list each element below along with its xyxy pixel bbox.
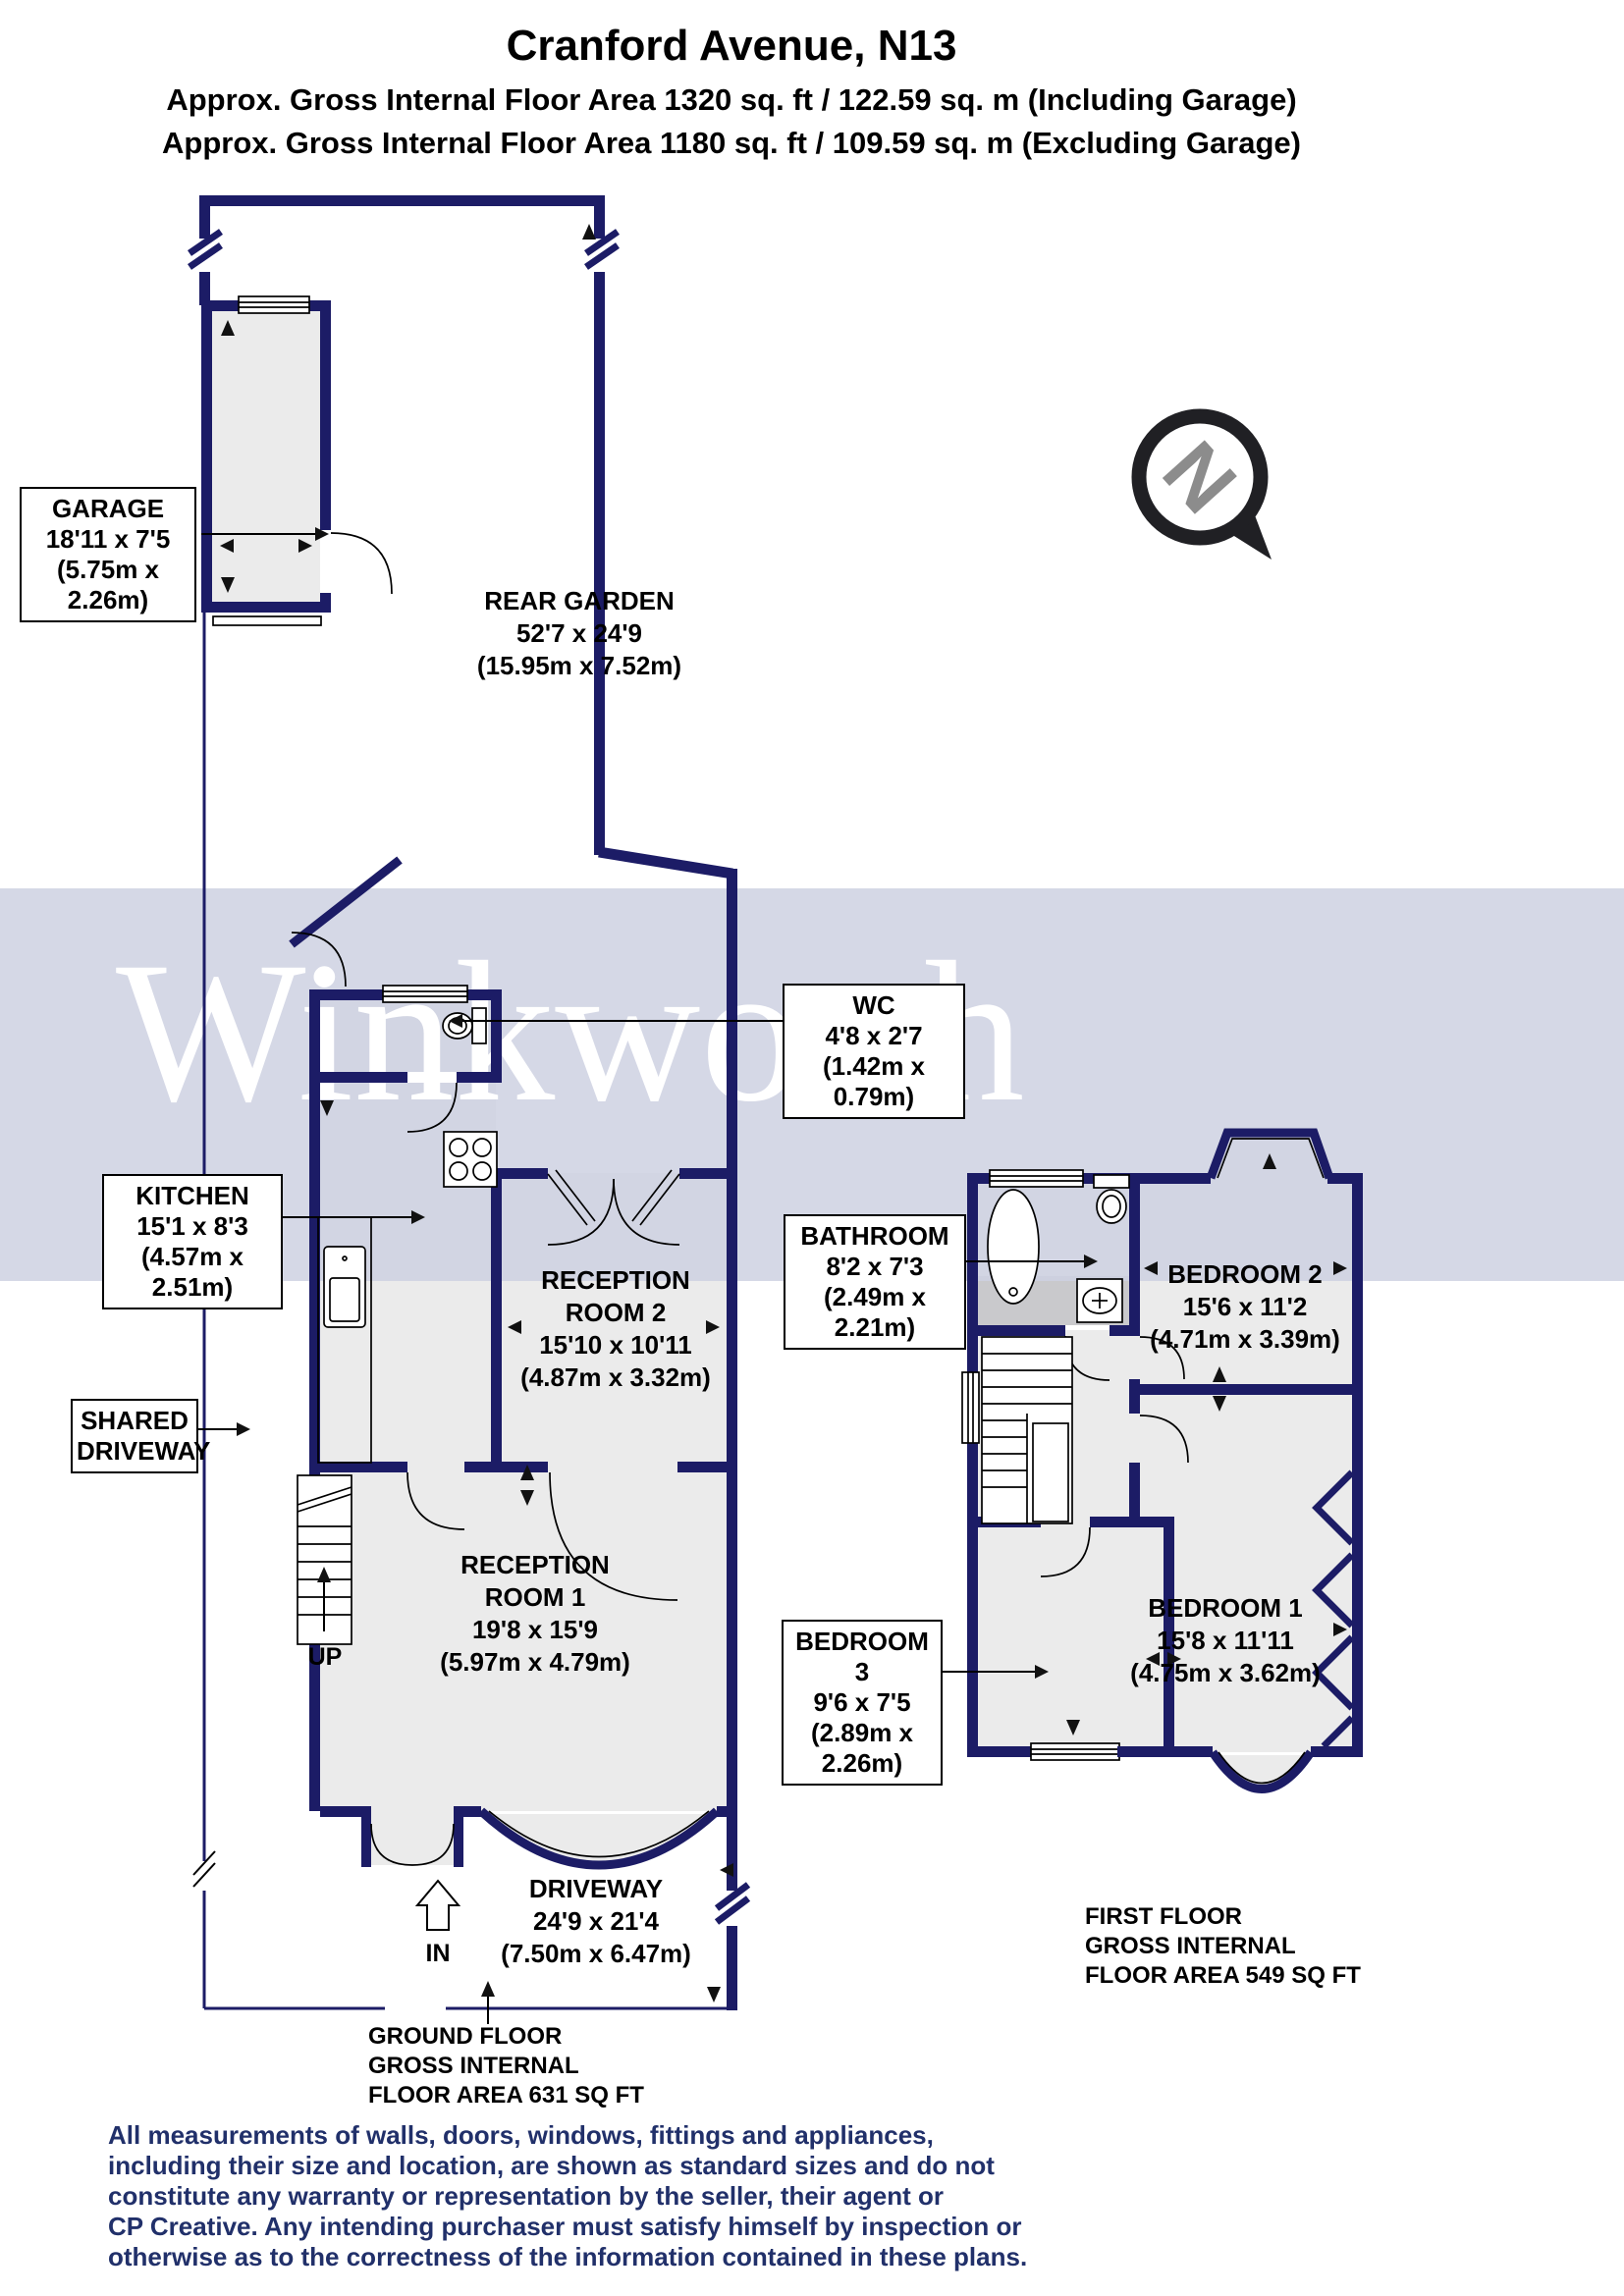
wc-right-wall [491,989,502,1083]
porch-door-arc-left [371,1824,412,1865]
wc-label-imperial: 4'8 x 2'7 [788,1021,959,1051]
ff-bottom-wall-left [967,1746,1031,1757]
boundary-break-bottom-right [717,1885,748,1926]
reception1-label: RECEPTION ROOM 1 19'8 x 15'9 (5.97m x 4.… [440,1549,630,1679]
wc-label: WC 4'8 x 2'7 (1.42m x 0.79m) [783,984,965,1119]
rear-garden-metric: (15.95m x 7.52m) [477,650,681,682]
ff-stairs [982,1337,1072,1523]
garage-label-metric: (5.75m x 2.26m) [26,555,190,615]
reception2-metric: (4.87m x 3.32m) [520,1362,711,1394]
reception2-label: RECEPTION ROOM 2 15'10 x 10'11 (4.87m x … [520,1264,711,1394]
bathroom-bottom-wall-left [967,1325,1065,1336]
in-arrow [417,1881,459,1930]
garage-gate [213,616,321,625]
north-compass: N [1139,416,1272,560]
bedroom1-bay-window [1213,1752,1311,1789]
reception2-name2: ROOM 2 [520,1297,711,1329]
wc-door-gap [407,1072,457,1083]
ground-area-line2: GROSS INTERNAL [368,2052,644,2081]
driveway-imperial: 24'9 x 21'4 [501,1905,691,1938]
bedroom1-label: BEDROOM 1 15'8 x 11'11 (4.75m x 3.62m) [1130,1592,1321,1689]
bedroom3-label-imperial: 9'6 x 7'5 [787,1687,937,1718]
garden-top-fence [199,195,605,206]
first-area-line3: FLOOR AREA 549 SQ FT [1085,1961,1361,1991]
first-floor-area-note: FIRST FLOOR GROSS INTERNAL FLOOR AREA 54… [1085,1902,1361,1991]
bedroom3-label-metric: (2.89m x 2.26m) [787,1718,937,1779]
bathroom-label: BATHROOM 8'2 x 7'3 (2.49m x 2.21m) [784,1214,966,1350]
porch-door-arc-right [412,1824,454,1865]
disclaimer-line4: CP Creative. Any intending purchaser mus… [108,2212,1027,2242]
reception1-imperial: 19'8 x 15'9 [440,1614,630,1646]
shared-driveway-line1: SHARED [77,1406,192,1436]
garage-label-name: GARAGE [26,494,190,524]
garage-bottom-wall [201,602,331,613]
reception1-metric: (5.97m x 4.79m) [440,1646,630,1679]
bathtub [988,1190,1039,1304]
garage-door-arc [331,533,392,594]
ground-floor-house [292,933,737,1867]
reception1-name1: RECEPTION [440,1549,630,1581]
garage-label-imperial: 18'11 x 7'5 [26,524,190,555]
ground-stairs [298,1475,352,1644]
reception2-name1: RECEPTION [520,1264,711,1297]
entrance-in-label: IN [426,1938,451,1970]
bathroom-fixtures [988,1175,1129,1322]
garden-right-fence [594,195,605,855]
reception2-imperial: 15'10 x 10'11 [520,1329,711,1362]
front-wall [320,1806,737,1867]
bedroom1-imperial: 15'8 x 11'11 [1130,1625,1321,1657]
driveway-entrance-gap [385,2002,446,2014]
first-floor [962,1133,1363,1789]
kitchen-hob [444,1132,497,1187]
stairs-up-label: UP [308,1641,343,1674]
disclaimer-line2: including their size and location, are s… [108,2151,1027,2181]
kitchen-label-imperial: 15'1 x 8'3 [108,1211,277,1242]
rear-garden-label: REAR GARDEN 52'7 x 24'9 (15.95m x 7.52m) [477,585,681,682]
garage [201,296,392,625]
bedroom3-label: BEDROOM 3 9'6 x 7'5 (2.89m x 2.26m) [782,1620,943,1786]
bedroom3-top-wall-right [1090,1517,1174,1527]
page-title: Cranford Avenue, N13 [0,22,1463,71]
ground-area-line1: GROUND FLOOR [368,2022,644,2052]
side-fence-diagonal [292,860,400,944]
rear-garden-imperial: 52'7 x 24'9 [477,617,681,650]
bedroom1-name: BEDROOM 1 [1130,1592,1321,1625]
rear-garden-name: REAR GARDEN [477,585,681,617]
bathroom-label-metric: (2.49m x 2.21m) [789,1282,960,1343]
disclaimer-line5: otherwise as to the correctness of the i… [108,2242,1027,2272]
porch-right-wall [454,1806,463,1867]
landing-window [962,1372,979,1443]
bathroom-label-name: BATHROOM [789,1221,960,1252]
kitchen-label: KITCHEN 15'1 x 8'3 (4.57m x 2.51m) [102,1174,283,1309]
bathroom-bedroom2-wall [1129,1173,1140,1335]
bathroom-window [990,1170,1083,1187]
ground-floor-area-note: GROUND FLOOR GROSS INTERNAL FLOOR AREA 6… [368,2022,644,2110]
bathroom-bottom-wall-right [1110,1325,1140,1336]
ff-toilet-tank [1094,1175,1129,1188]
porch-left-wall [361,1806,371,1867]
disclaimer-text: All measurements of walls, doors, window… [108,2120,1027,2272]
driveway-label: DRIVEWAY 24'9 x 21'4 (7.50m x 6.47m) [501,1873,691,1970]
driveway-metric: (7.50m x 6.47m) [501,1938,691,1970]
plot-boundary [189,195,748,2014]
bedroom2-name: BEDROOM 2 [1150,1258,1340,1291]
ff-toilet-bowl [1097,1190,1126,1223]
ff-bottom-wall-right [1311,1746,1363,1757]
bedroom3-door-arc [1041,1527,1090,1576]
bedroom3-window [1031,1743,1119,1760]
fence-jog [599,852,732,874]
kitchen-fixtures [318,1132,497,1463]
floor-area-excluding-garage: Approx. Gross Internal Floor Area 1180 s… [0,126,1463,161]
ff-right-wall [1352,1173,1363,1757]
bedroom1-door-arc [1140,1415,1188,1463]
bathroom-label-imperial: 8'2 x 7'3 [789,1252,960,1282]
kitchen-label-name: KITCHEN [108,1181,277,1211]
kitchen-label-metric: (4.57m x 2.51m) [108,1242,277,1303]
bedroom2-bottom-wall [1129,1384,1363,1395]
bedroom2-imperial: 15'6 x 11'2 [1150,1291,1340,1323]
reception1-name2: ROOM 1 [440,1581,630,1614]
bedroom2-label: BEDROOM 2 15'6 x 11'2 (4.71m x 3.39m) [1150,1258,1340,1356]
wc-door-arc [407,1083,457,1132]
shared-driveway-line2: DRIVEWAY [77,1436,192,1467]
wc-toilet [443,1008,486,1043]
kitchen-reception2-wall [491,1168,502,1472]
ground-area-line3: FLOOR AREA 631 SQ FT [368,2081,644,2110]
driveway-name: DRIVEWAY [501,1873,691,1905]
floor-area-including-garage: Approx. Gross Internal Floor Area 1320 s… [0,82,1463,118]
reception2-garden-doors [491,1168,737,1245]
right-boundary [727,869,737,2010]
bedroom2-metric: (4.71m x 3.39m) [1150,1323,1340,1356]
bedroom3-label-name: BEDROOM 3 [787,1627,937,1687]
kitchen-door-arc [407,1472,464,1529]
wc-label-metric: (1.42m x 0.79m) [788,1051,959,1112]
garage-window [239,296,309,313]
disclaimer-line1: All measurements of walls, doors, window… [108,2120,1027,2151]
garage-left-wall [201,300,212,613]
floorplan-page: Winkworth [0,0,1624,2296]
garage-door-gap [320,530,331,593]
first-area-line1: FIRST FLOOR [1085,1902,1361,1932]
walls-layer: N [0,0,1624,2296]
garage-label: GARAGE 18'11 x 7'5 (5.75m x 2.26m) [20,487,196,622]
bedroom1-wardrobes [1317,1472,1352,1746]
landing-wall-lower [1129,1463,1140,1517]
wc-label-name: WC [788,990,959,1021]
first-area-line2: GROSS INTERNAL [1085,1932,1361,1961]
ff-bottom-wall-mid [1117,1746,1213,1757]
disclaimer-line3: constitute any warranty or representatio… [108,2181,1027,2212]
shared-driveway-label: SHARED DRIVEWAY [71,1399,198,1473]
wc-bottom-wall [309,1072,502,1083]
bedroom1-metric: (4.75m x 3.62m) [1130,1657,1321,1689]
wc-window [383,986,467,1002]
